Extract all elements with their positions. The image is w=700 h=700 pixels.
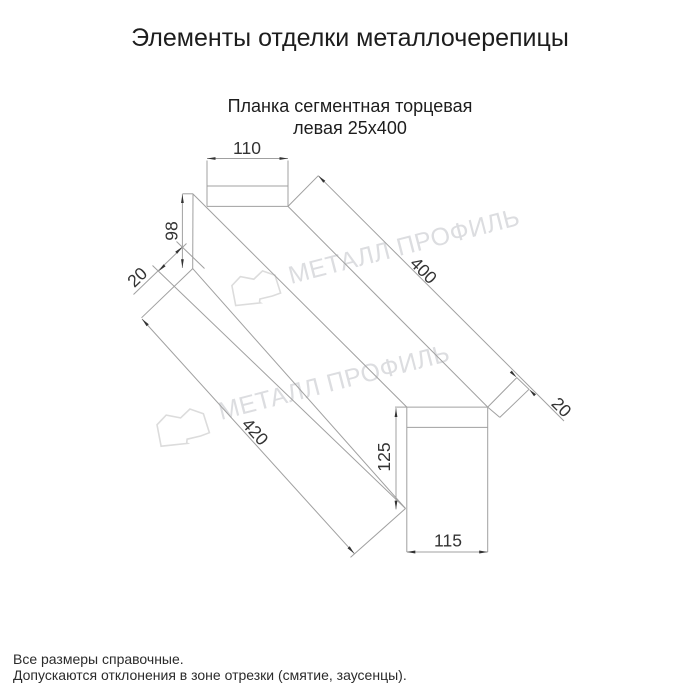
svg-text:110: 110 [233,138,261,158]
svg-text:20: 20 [547,393,575,421]
svg-text:115: 115 [434,531,462,551]
svg-text:125: 125 [374,442,394,471]
svg-text:20: 20 [123,263,151,291]
svg-text:98: 98 [162,221,182,240]
svg-text:МЕТАЛЛ ПРОФИЛЬ: МЕТАЛЛ ПРОФИЛЬ [215,339,452,426]
svg-text:МЕТАЛЛ ПРОФИЛЬ: МЕТАЛЛ ПРОФИЛЬ [285,203,522,290]
